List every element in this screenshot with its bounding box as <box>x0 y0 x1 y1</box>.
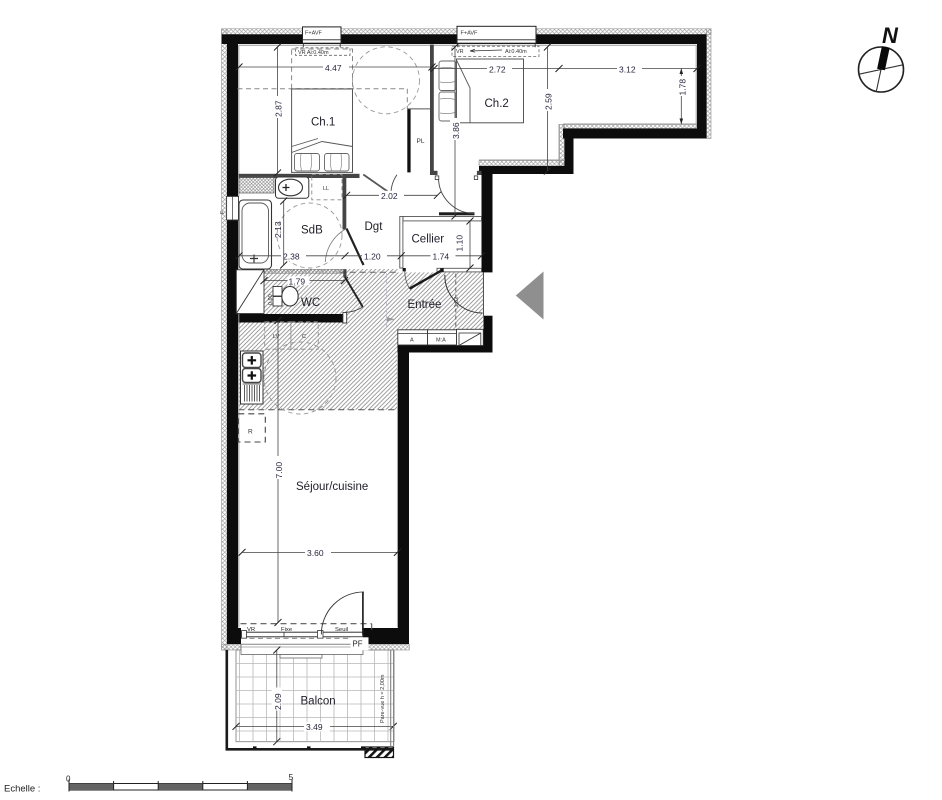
svg-text:F+AVF: F+AVF <box>305 31 323 37</box>
svg-text:1,52: 1,52 <box>454 297 460 308</box>
svg-text:3.49: 3.49 <box>306 722 323 732</box>
svg-text:Echelle :: Echelle : <box>4 784 40 795</box>
svg-text:1.20: 1.20 <box>364 252 381 262</box>
svg-text:2.87: 2.87 <box>274 100 284 117</box>
svg-text:2.59: 2.59 <box>544 93 554 110</box>
svg-text:Fixe: Fixe <box>281 627 293 633</box>
svg-text:7.00: 7.00 <box>274 462 284 479</box>
svg-text:1.79: 1.79 <box>289 276 306 286</box>
svg-text:LV: LV <box>273 334 280 340</box>
svg-text:PL: PL <box>417 138 425 145</box>
svg-text:R: R <box>248 429 253 436</box>
svg-text:VR: VR <box>247 627 255 633</box>
svg-text:C: C <box>302 334 306 340</box>
svg-text:1.74: 1.74 <box>433 252 450 262</box>
svg-text:LL: LL <box>323 186 329 192</box>
svg-text:VR: VR <box>456 49 464 55</box>
svg-text:3.12: 3.12 <box>619 64 636 74</box>
svg-text:SdB: SdB <box>301 225 323 237</box>
svg-text:2.38: 2.38 <box>283 252 300 262</box>
svg-text:Balcon: Balcon <box>301 696 336 708</box>
svg-text:3.60: 3.60 <box>307 548 324 558</box>
svg-text:Ch.2: Ch.2 <box>485 98 509 110</box>
svg-text:1.78: 1.78 <box>677 79 687 96</box>
svg-text:M:A: M:A <box>436 338 446 344</box>
svg-text:2.09: 2.09 <box>273 693 283 710</box>
svg-text:A: A <box>410 338 414 344</box>
svg-text:0.90: 0.90 <box>268 294 274 305</box>
svg-text:2.02: 2.02 <box>381 191 398 201</box>
svg-text:4.47: 4.47 <box>325 63 342 73</box>
svg-text:Cellier: Cellier <box>412 234 445 246</box>
svg-text:F+AVF: F+AVF <box>461 31 479 37</box>
svg-text:5: 5 <box>289 772 294 782</box>
svg-text:Séjour/cuisine: Séjour/cuisine <box>296 481 368 493</box>
svg-text:Dgt: Dgt <box>365 221 384 233</box>
svg-text:Pare-vue h = 2,00m: Pare-vue h = 2,00m <box>380 674 386 723</box>
svg-text:Entrée: Entrée <box>408 299 442 311</box>
svg-text:2.13: 2.13 <box>273 221 283 238</box>
svg-text:1.10: 1.10 <box>455 235 465 252</box>
svg-text:N: N <box>882 23 899 48</box>
svg-text:PF: PF <box>353 640 363 649</box>
svg-text:WC: WC <box>301 297 320 309</box>
svg-text:3.86: 3.86 <box>451 122 461 139</box>
svg-text:VR Ai:0.40m: VR Ai:0.40m <box>298 50 329 56</box>
svg-text:0: 0 <box>66 775 71 784</box>
svg-text:Ai:0.40m: Ai:0.40m <box>505 49 527 55</box>
svg-text:Seuil: Seuil <box>335 627 348 633</box>
svg-text:2.72: 2.72 <box>489 64 506 74</box>
svg-text:Ch.1: Ch.1 <box>311 117 335 129</box>
